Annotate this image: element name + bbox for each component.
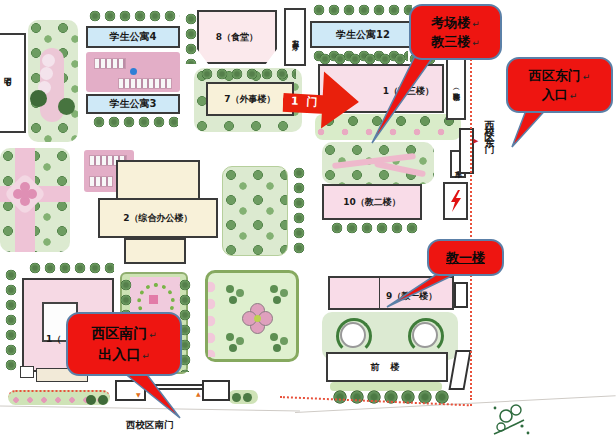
- callout-exam-building: 考场楼↵ 教三楼↵: [409, 4, 502, 60]
- parked-cars: [118, 78, 172, 89]
- round-plaza: [412, 322, 438, 348]
- park-northwest: [28, 20, 78, 142]
- building-apartment4-label: 学生公寓4: [110, 30, 157, 44]
- garden-teach2: [322, 142, 434, 184]
- round-plaza: [340, 322, 366, 348]
- return-mark-icon: ↵: [142, 351, 150, 361]
- callout-south-gate-line1: 西区南门: [91, 325, 147, 341]
- campus-boundary-east: [470, 56, 472, 400]
- garden-middle: [222, 166, 288, 256]
- tree-row: [330, 222, 418, 235]
- pavilion-icon: [20, 189, 30, 199]
- building-divider: [379, 278, 380, 308]
- flower-center: [254, 315, 261, 322]
- building-apartment3-label: 学生公寓3: [110, 97, 157, 111]
- entrance-arrow-label: 1 门: [291, 93, 320, 109]
- small-building-sw: [20, 366, 34, 378]
- building-admin-north-wing: [116, 160, 200, 200]
- building-admin: 2（综合办公楼）: [98, 198, 218, 238]
- parked-cars: [94, 58, 126, 69]
- building-teach1-label: 9（教一楼）: [386, 290, 437, 303]
- building-foreign-affairs: 7（外事楼）: [206, 82, 294, 116]
- building-apartment12: 学生公寓12: [310, 21, 416, 48]
- building-front: 前 楼: [326, 352, 448, 382]
- callout-teach1-line1: 教一楼: [446, 250, 485, 265]
- return-mark-icon: ↵: [472, 38, 480, 48]
- parking-lot-north: [86, 52, 180, 92]
- tree-row: [88, 10, 180, 23]
- parked-cars: [89, 176, 113, 187]
- tree-cluster: [270, 333, 278, 341]
- tree-cluster: [270, 285, 278, 293]
- park-pavilion: [0, 148, 70, 252]
- return-mark-icon: ↵: [583, 72, 591, 82]
- building-front-label: 前 楼: [370, 361, 403, 374]
- south-gate-marker-icon: ▲: [196, 390, 201, 397]
- tree-cluster: [226, 285, 234, 293]
- east-gate-marker-icon: ▶: [473, 137, 478, 145]
- building-teach1-annex: [454, 282, 468, 308]
- tree-row: [92, 116, 178, 129]
- winding-path: [374, 161, 426, 178]
- tree-column: [184, 12, 198, 64]
- building-canteen-label: 8（食堂）: [216, 31, 258, 44]
- hedge-southwest: [8, 390, 110, 405]
- building-jia6: 甲6: [0, 33, 26, 133]
- building-1-label: 1（: [46, 333, 61, 346]
- return-mark-icon: ↵: [472, 19, 480, 29]
- tree-row: [312, 4, 412, 17]
- callout-east-gate-line1: 西区东门: [529, 68, 581, 83]
- tree-cluster: [226, 333, 234, 341]
- garden-flower-court: [205, 270, 299, 362]
- south-gate-house-east: [202, 380, 230, 401]
- south-gate-marker-icon: ▼: [136, 391, 141, 398]
- big-tree: [232, 393, 241, 402]
- return-mark-icon: ↵: [149, 330, 157, 340]
- callout-exam-line2: 教三楼: [431, 34, 470, 49]
- south-gate-barrier: [144, 384, 202, 390]
- building-teach2: 10（教二楼）: [322, 184, 422, 220]
- building-teach2-label: 10（教二楼）: [343, 196, 401, 209]
- flower-hedge: [315, 114, 461, 140]
- south-gate-house-west: [115, 380, 146, 401]
- building-jia6-label: 甲6: [2, 70, 15, 96]
- building-apartment4: 学生公寓4: [86, 26, 180, 48]
- building-admin-south-wing: [124, 238, 186, 264]
- callout-south-gate-line2: 出入口: [98, 346, 140, 362]
- tree-row: [28, 262, 114, 275]
- campus-map: 甲6 学生公寓4 学生公寓3 8（食堂） 实习餐厅 学生公寓12: [0, 0, 616, 446]
- hedge-southeast: [228, 390, 258, 404]
- tree-row: [200, 68, 296, 81]
- building-foreign-affairs-label: 7（外事楼）: [224, 93, 275, 106]
- building-power-station: [443, 182, 468, 220]
- east-gate-vertical-label: 西校区东门: [482, 112, 496, 224]
- parking-icon: [130, 68, 137, 75]
- big-tree: [30, 90, 47, 107]
- callout-east-gate-line2: 入口: [542, 87, 568, 102]
- corner-ornament: [492, 400, 534, 442]
- building-apartment3: 学生公寓3: [86, 94, 180, 114]
- south-gate-label: 西校区南门: [126, 419, 174, 432]
- building-teach1: 9（教一楼）: [328, 276, 454, 310]
- scallop-edge: [208, 279, 218, 357]
- flower-motif: [242, 303, 272, 333]
- return-mark-icon: ↵: [570, 91, 578, 101]
- big-tree: [86, 395, 96, 405]
- building-lab-label: （实验楼）: [451, 85, 461, 90]
- big-tree: [58, 98, 75, 115]
- lightning-icon: [449, 190, 462, 212]
- building-practice-restaurant-label: 实习餐厅: [290, 33, 300, 41]
- callout-east-gate: 西区东门↵ 入口↵: [506, 57, 613, 113]
- building-lab: （实验楼）: [446, 54, 466, 120]
- callout-south-gate: 西区南门↵ 出入口↵: [66, 312, 182, 376]
- callout-exam-line1: 考场楼: [431, 15, 470, 30]
- building-canteen: 8（食堂）: [197, 10, 277, 64]
- park-pond-circles: [42, 54, 55, 67]
- plaza-center-square: [149, 295, 158, 304]
- building-teach3-label: 1（教三楼）: [383, 85, 434, 98]
- tree-column: [4, 268, 18, 372]
- tree-column: [292, 166, 306, 254]
- road: [0, 405, 300, 411]
- building-apartment12-label: 学生公寓12: [336, 28, 390, 42]
- building-admin-label: 2（综合办公楼）: [123, 212, 192, 225]
- building-practice-restaurant: 实习餐厅: [284, 8, 306, 66]
- callout-teach1: 教一楼: [427, 239, 504, 276]
